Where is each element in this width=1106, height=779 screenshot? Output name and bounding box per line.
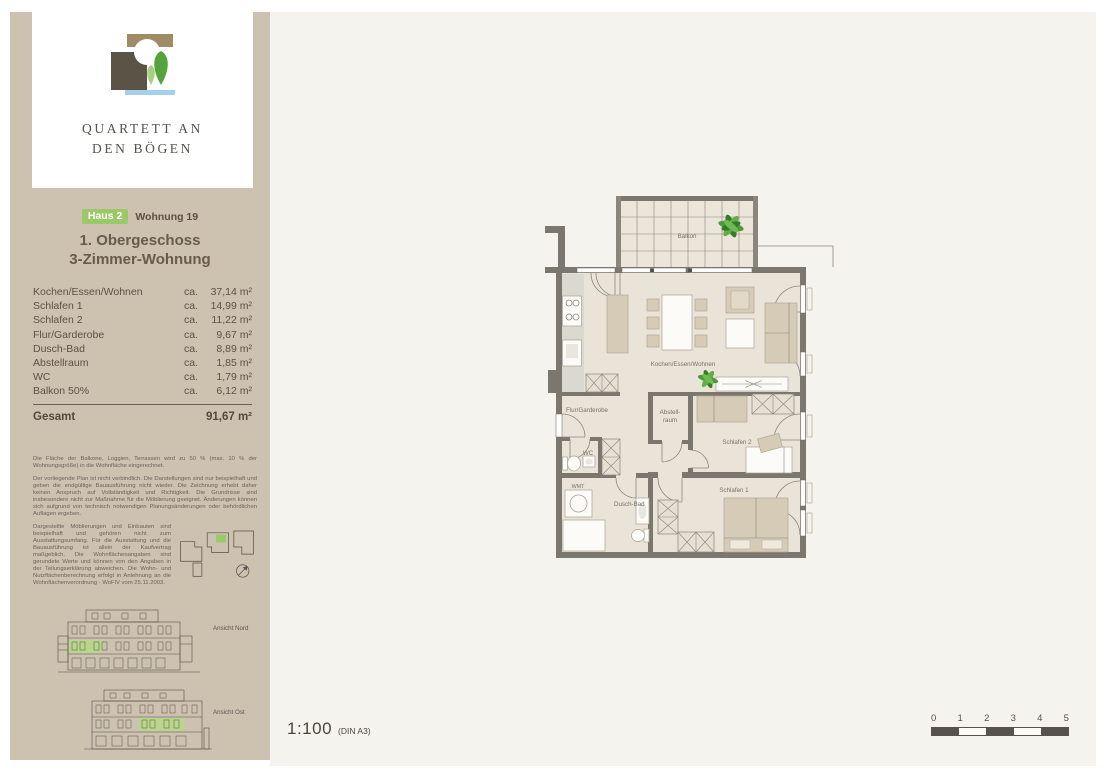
- ca-label: ca.: [174, 384, 198, 398]
- unit-label: Wohnung 19: [135, 211, 198, 223]
- table-separator: [33, 404, 252, 405]
- washing-machine-icon: [565, 490, 592, 517]
- brand-logo-card: QUARTETT AN DEN BÖGEN: [32, 0, 253, 188]
- title-floor: 1. Obergeschoss: [10, 231, 270, 250]
- scale-tick: 1: [958, 713, 963, 724]
- dining-table: [662, 295, 692, 350]
- room-name: Schlafen 2: [33, 313, 174, 327]
- ca-label: ca.: [174, 285, 198, 299]
- room-area: 11,22 m²: [198, 313, 252, 327]
- ca-label: ca.: [174, 299, 198, 313]
- room-area: 14,99 m²: [198, 299, 252, 313]
- scale-tick: 5: [1064, 713, 1069, 724]
- table-row: Abstellraum ca. 1,85 m²: [33, 356, 252, 370]
- table-row: WC ca. 1,79 m²: [33, 370, 252, 384]
- sink-icon: [566, 344, 578, 358]
- leaf-small-icon: [147, 65, 155, 85]
- elevation-east: [82, 688, 214, 754]
- room-name: WC: [33, 370, 174, 384]
- table-row: Schlafen 1 ca. 14,99 m²: [33, 299, 252, 313]
- brand-logo-icon: [102, 28, 184, 100]
- brand-name-line2: DEN BÖGEN: [32, 139, 253, 159]
- kitchen-zone: [562, 274, 584, 392]
- bed-schlafen1: [724, 498, 788, 552]
- floor-plan: Balkon Kochen/Essen/Wohnen Flur/Garderob…: [533, 186, 843, 571]
- sink-icon: [583, 456, 595, 467]
- room-label-balkon: Balkon: [678, 233, 697, 240]
- table-row: Kochen/Essen/Wohnen ca. 37,14 m²: [33, 285, 252, 299]
- room-label-schlafen1: Schlafen 1: [719, 487, 749, 494]
- table-total-row: Gesamt 91,67 m²: [33, 411, 252, 423]
- room-label-wmt: WMT: [572, 484, 586, 490]
- wardrobe: [602, 439, 620, 475]
- sidebar: QUARTETT AN DEN BÖGEN Haus 2 Wohnung 19 …: [10, 12, 270, 760]
- disclaimer-paragraph: Die Fläche der Balkone, Loggien, Terrass…: [33, 456, 257, 470]
- page-title: 1. Obergeschoss 3-Zimmer-Wohnung: [10, 231, 270, 269]
- table-row: Dusch-Bad ca. 8,89 m²: [33, 342, 252, 356]
- scale-ticks: 0 1 2 3 4 5: [931, 713, 1069, 727]
- scale-tick: 3: [1011, 713, 1016, 724]
- room-name: Abstellraum: [33, 356, 174, 370]
- table-row: Flur/Garderobe ca. 9,67 m²: [33, 328, 252, 342]
- scale-sheet-format: (DIN A3): [338, 726, 371, 736]
- site-key-plan: [177, 524, 257, 586]
- sideboard: [716, 377, 788, 391]
- house-badge: Haus 2: [82, 209, 128, 224]
- table-row: Schlafen 2 ca. 11,22 m²: [33, 313, 252, 327]
- total-value: 91,67 m²: [206, 411, 252, 423]
- dining-set: [647, 295, 707, 350]
- coffee-table: [726, 319, 754, 348]
- room-name: Balkon 50%: [33, 384, 174, 398]
- scale-segments: [931, 727, 1069, 736]
- wardrobe: [752, 394, 794, 414]
- room-area: 9,67 m²: [198, 328, 252, 342]
- wardrobe: [586, 374, 618, 392]
- window: [577, 268, 752, 273]
- bed-schlafen2: [746, 447, 792, 473]
- closet: [697, 396, 747, 422]
- room-label-abstell: Abstell-: [660, 409, 681, 416]
- disclaimer: Die Fläche der Balkone, Loggien, Terrass…: [33, 456, 257, 593]
- toilet-icon: [632, 529, 650, 542]
- scale-tick: 0: [931, 713, 936, 724]
- highlight-building: [216, 535, 226, 543]
- unit-row: Haus 2 Wohnung 19: [10, 209, 270, 224]
- room-label-wc: WC: [583, 450, 594, 457]
- disclaimer-paragraph: Dargestellte Möblierungen und Einbauten …: [33, 524, 171, 587]
- room-area: 6,12 m²: [198, 384, 252, 398]
- scale-bar: 0 1 2 3 4 5: [931, 713, 1069, 736]
- ca-label: ca.: [174, 313, 198, 327]
- elevation-label-north: Ansicht Nord: [213, 625, 248, 632]
- room-area: 1,79 m²: [198, 370, 252, 384]
- total-label: Gesamt: [33, 411, 75, 423]
- room-label-schlafen2: Schlafen 2: [722, 439, 752, 446]
- room-area: 1,85 m²: [198, 356, 252, 370]
- leaf-icon: [154, 51, 168, 85]
- table-row: Balkon 50% ca. 6,12 m²: [33, 384, 252, 398]
- room-area: 37,14 m²: [198, 285, 252, 299]
- room-label-flur: Flur/Garderobe: [566, 407, 609, 414]
- scale-ratio: 1:100: [287, 719, 332, 738]
- room-label-abstell: raum: [663, 417, 677, 424]
- title-type: 3-Zimmer-Wohnung: [10, 250, 270, 269]
- ca-label: ca.: [174, 342, 198, 356]
- toilet-icon: [563, 456, 581, 471]
- room-label-bad: Dusch-Bad: [614, 501, 645, 508]
- area-table: Kochen/Essen/Wohnen ca. 37,14 m² Schlafe…: [33, 285, 252, 423]
- compass-icon: [237, 565, 249, 577]
- disclaimer-paragraph: Der vorliegende Plan ist nicht verbindli…: [33, 476, 257, 518]
- brand-name: QUARTETT AN DEN BÖGEN: [32, 119, 253, 159]
- neighbor-balcony-outline: [758, 246, 833, 267]
- scale-tick: 2: [984, 713, 989, 724]
- scale-tick: 4: [1037, 713, 1042, 724]
- room-name: Kochen/Essen/Wohnen: [33, 285, 174, 299]
- room-area: 8,89 m²: [198, 342, 252, 356]
- kitchen-island: [607, 295, 628, 353]
- shower: [563, 520, 605, 551]
- elevation-label-east: Ansicht Ost: [213, 709, 245, 716]
- ca-label: ca.: [174, 328, 198, 342]
- ca-label: ca.: [174, 370, 198, 384]
- scale-note: 1:100(DIN A3): [287, 719, 371, 739]
- ca-label: ca.: [174, 356, 198, 370]
- room-name: Dusch-Bad: [33, 342, 174, 356]
- room-label-living: Kochen/Essen/Wohnen: [651, 361, 716, 368]
- brand-name-line1: QUARTETT AN: [32, 119, 253, 139]
- room-name: Schlafen 1: [33, 299, 174, 313]
- elevation-north: [56, 606, 202, 676]
- room-name: Flur/Garderobe: [33, 328, 174, 342]
- brochure-page: QUARTETT AN DEN BÖGEN Haus 2 Wohnung 19 …: [0, 0, 1106, 779]
